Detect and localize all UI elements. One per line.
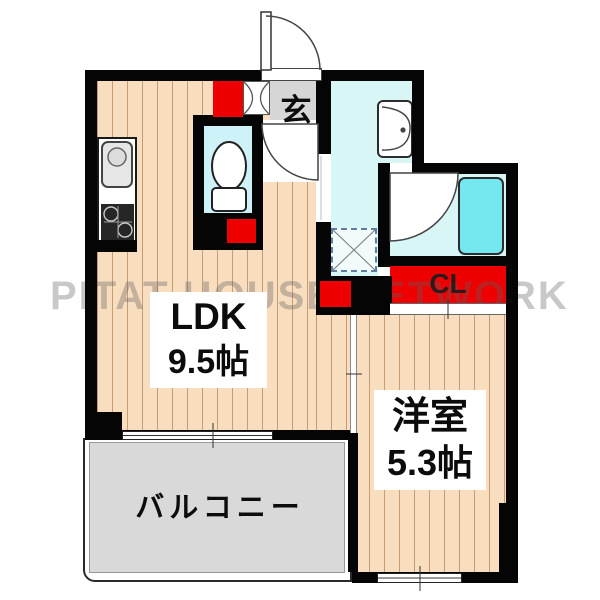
hall-storage-top: [320, 281, 351, 307]
western-name: 洋室: [374, 394, 486, 440]
western-room-label: 洋室 5.3帖: [374, 390, 486, 490]
wall-kitchen-stub: [97, 240, 137, 252]
wall-bath-top: [412, 163, 518, 174]
wall-right-lower: [499, 503, 518, 583]
wall-bath-left: [378, 163, 390, 267]
washroom-door-opening: [316, 154, 331, 222]
closet-label: CL: [390, 268, 506, 300]
wall-top-left: [85, 70, 262, 81]
bathtub-icon: [458, 177, 504, 255]
shoe-cabinet: [213, 81, 243, 117]
washing-machine-space-icon: [331, 228, 377, 272]
wall-left: [85, 70, 97, 440]
floor-plan: PITAT HOUSE NETWORK LDK 9.5帖 洋室 5.3帖 バルコ…: [0, 0, 600, 600]
balcony-label: バルコニー: [95, 484, 345, 526]
toilet-storage: [227, 219, 256, 243]
closet-sliding-door: [390, 303, 506, 315]
western-size: 5.3帖: [374, 440, 486, 486]
entrance-door-leaf: [261, 12, 271, 70]
ldk-name: LDK: [150, 294, 267, 340]
ldk-size: 9.5帖: [150, 340, 267, 384]
wall-bath-bottom: [378, 256, 506, 266]
ldk-floor-strip: [316, 315, 354, 433]
wall-western-left: [348, 433, 358, 572]
toilet-room-floor: [204, 126, 252, 213]
entrance-label: 玄: [274, 85, 318, 130]
wall-washroom-right: [412, 70, 424, 174]
balcony-window: [122, 431, 273, 440]
room-partition-sliding-door: [350, 315, 357, 433]
wall-right-upper: [506, 163, 518, 512]
gas-stove-icon: [101, 204, 134, 240]
wall-top-right: [320, 70, 424, 81]
bifold-door-area: [243, 81, 270, 115]
entrance-door-arc: [266, 16, 320, 70]
entrance-door-sill: [261, 68, 322, 81]
wall-ldk-corner: [85, 412, 122, 440]
western-window: [377, 573, 462, 583]
ldk-label: LDK 9.5帖: [150, 292, 267, 388]
washbasin-icon: [377, 100, 413, 158]
kitchen-sink-icon: [101, 141, 133, 188]
